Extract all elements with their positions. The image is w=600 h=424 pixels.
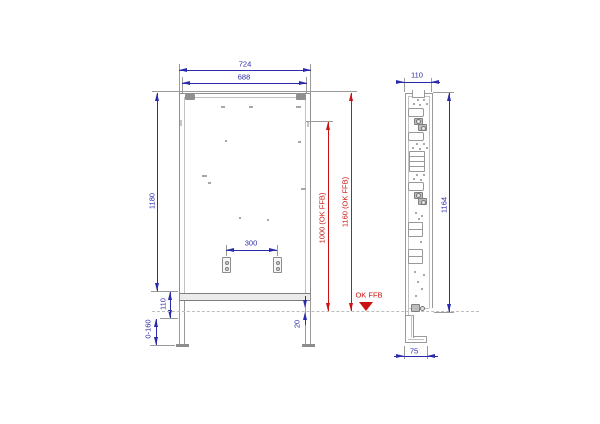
slot-cutout xyxy=(408,108,424,117)
leg-line xyxy=(411,315,412,337)
profile-right-outer xyxy=(432,93,433,308)
hole-dot xyxy=(416,143,418,145)
hole-dot xyxy=(415,295,417,297)
hole-dot xyxy=(412,147,414,149)
profile-right-inner xyxy=(429,96,430,308)
hole-dot xyxy=(413,103,415,105)
profile-left-inner xyxy=(408,96,409,315)
clamp-screw xyxy=(421,200,426,205)
profile-left-outer xyxy=(405,93,406,343)
foot-lip-top xyxy=(413,336,427,337)
arrowhead xyxy=(396,354,404,358)
hole-dot xyxy=(423,143,425,145)
hole-dot xyxy=(415,212,417,214)
clamp-screw xyxy=(416,193,421,198)
foot-bottom-line xyxy=(405,342,427,343)
bottom-clamp-detail xyxy=(411,304,420,312)
dim-label-75: 75 xyxy=(410,347,418,355)
slot-cutout xyxy=(408,132,424,141)
hole-dot xyxy=(420,179,422,181)
hole-dot xyxy=(419,148,421,150)
extension-line xyxy=(434,312,454,313)
hole-dot xyxy=(426,103,428,105)
arrowhead xyxy=(427,354,435,358)
ladder-rung xyxy=(410,161,424,162)
bottom-clamp-screw xyxy=(420,306,425,311)
hole-dot xyxy=(423,174,425,176)
hole-dot xyxy=(417,281,419,283)
dim-label-depth-110: 110 xyxy=(411,71,423,79)
arrowhead xyxy=(431,80,439,84)
leg-line xyxy=(413,315,414,338)
double-slot-cutout xyxy=(408,229,423,237)
hole-dot xyxy=(423,99,425,101)
hole-dot xyxy=(413,178,415,180)
foot-inner-line xyxy=(408,339,424,340)
ladder-rung xyxy=(410,156,424,157)
ladder-rung xyxy=(410,166,424,167)
clamp-screw xyxy=(421,126,426,131)
slot-cutout xyxy=(408,182,424,191)
dim-line-1164 xyxy=(449,93,450,312)
hole-dot xyxy=(421,288,423,290)
hole-dot xyxy=(418,218,420,220)
top-notch-bottom xyxy=(412,97,425,98)
hole-dot xyxy=(419,104,421,106)
extension-line xyxy=(404,78,405,92)
arrowhead xyxy=(447,93,451,101)
double-slot-cutout xyxy=(408,256,423,264)
hole-dot xyxy=(416,174,418,176)
clamp-screw xyxy=(416,119,421,124)
hole-dot xyxy=(414,271,416,273)
arrowhead xyxy=(447,304,451,312)
technical-drawing-canvas: 724 688 1180 110 0-160 300 xyxy=(0,0,600,424)
hole-dot xyxy=(426,147,428,149)
hole-dot xyxy=(423,274,425,276)
extension-line xyxy=(404,346,405,359)
side-view: 110 1164 75 xyxy=(0,0,600,424)
arrowhead xyxy=(396,80,404,84)
hole-dot xyxy=(417,99,419,101)
dim-label-1164: 1164 xyxy=(440,197,448,213)
hole-dot xyxy=(421,215,423,217)
hole-dot xyxy=(420,241,422,243)
